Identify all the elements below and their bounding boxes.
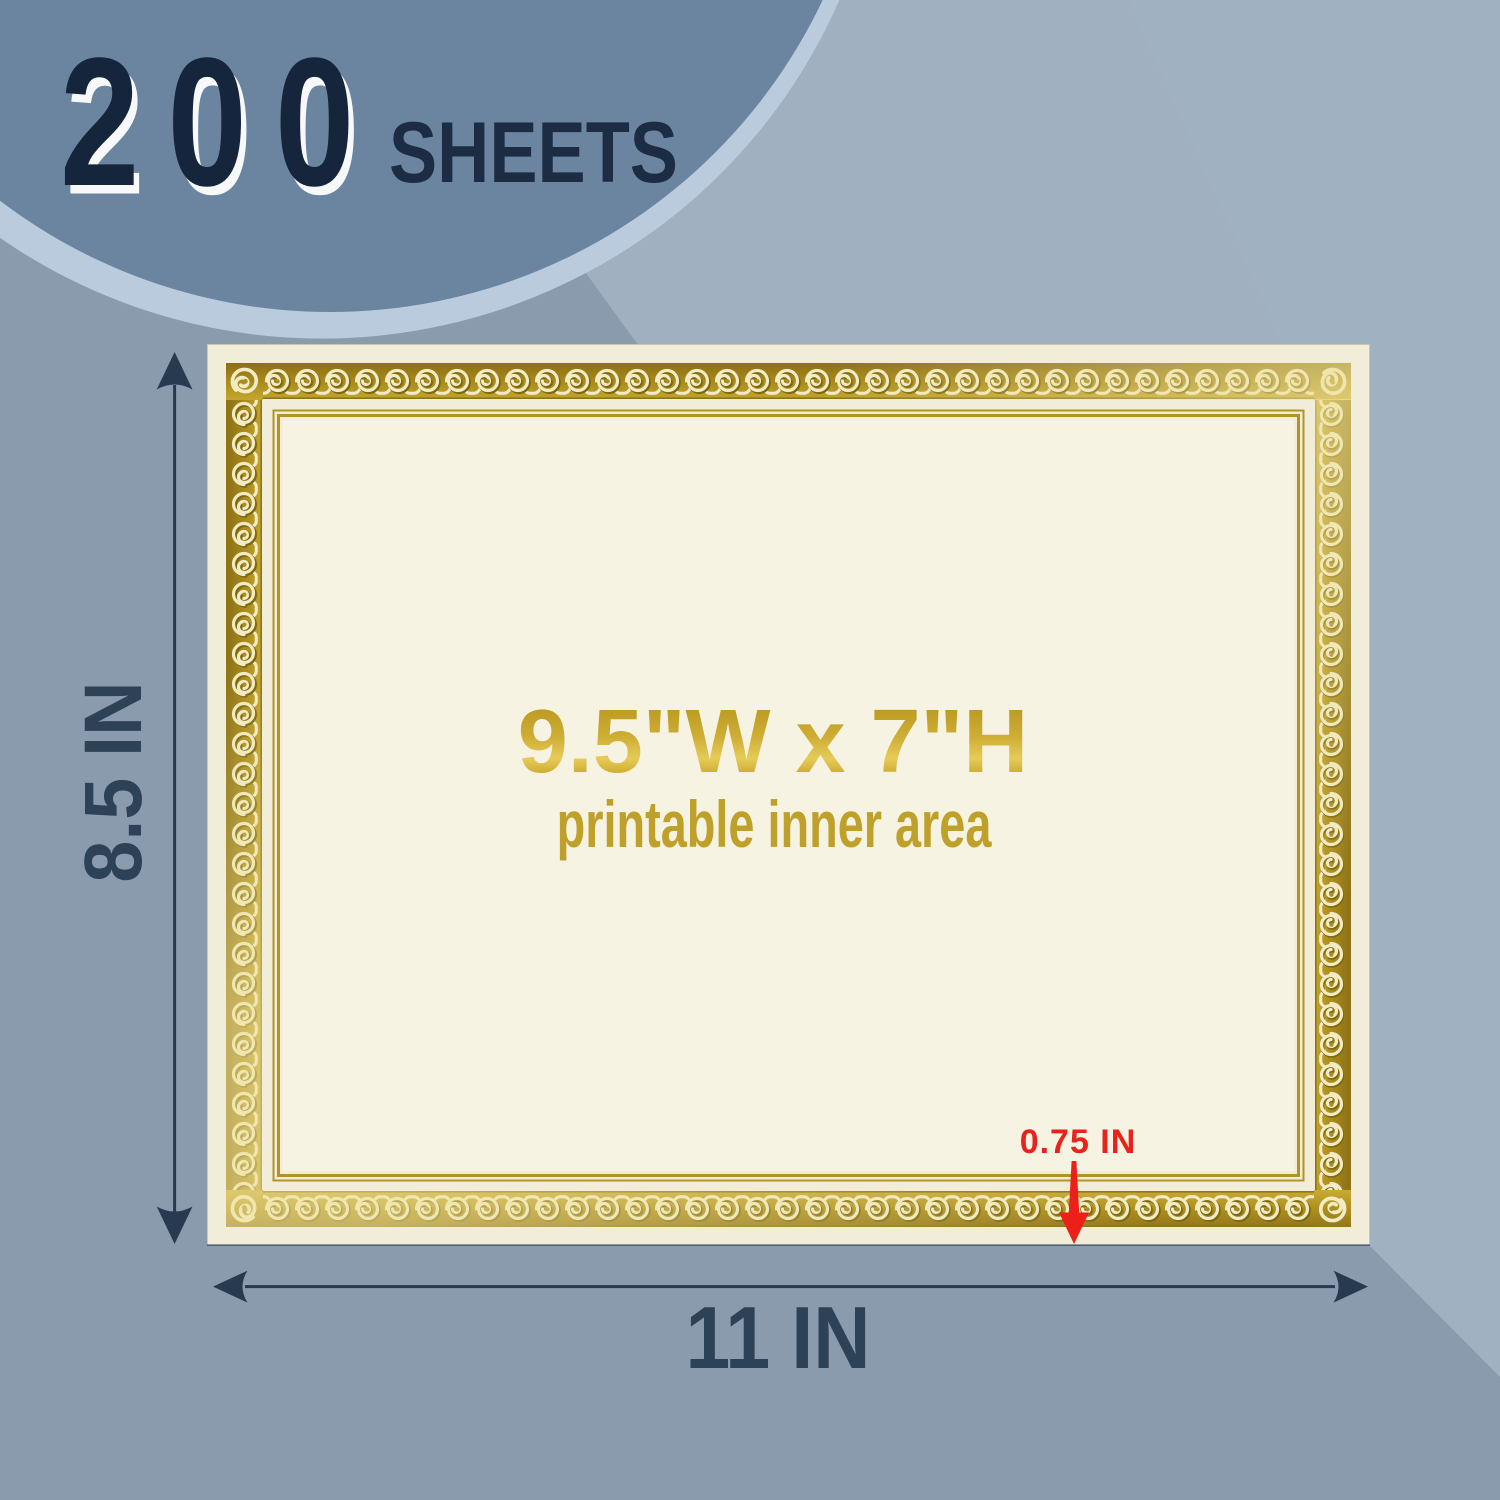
svg-text:200: 200 — [60, 19, 382, 224]
svg-text:8.5 IN: 8.5 IN — [67, 681, 159, 882]
svg-text:printable inner area: printable inner area — [557, 788, 993, 862]
svg-text:0.75 IN: 0.75 IN — [1020, 1123, 1137, 1161]
svg-text:11 IN: 11 IN — [686, 1288, 871, 1387]
svg-text:9.5"W x 7"H: 9.5"W x 7"H — [518, 692, 1029, 792]
svg-text:SHEETS: SHEETS — [389, 104, 678, 200]
